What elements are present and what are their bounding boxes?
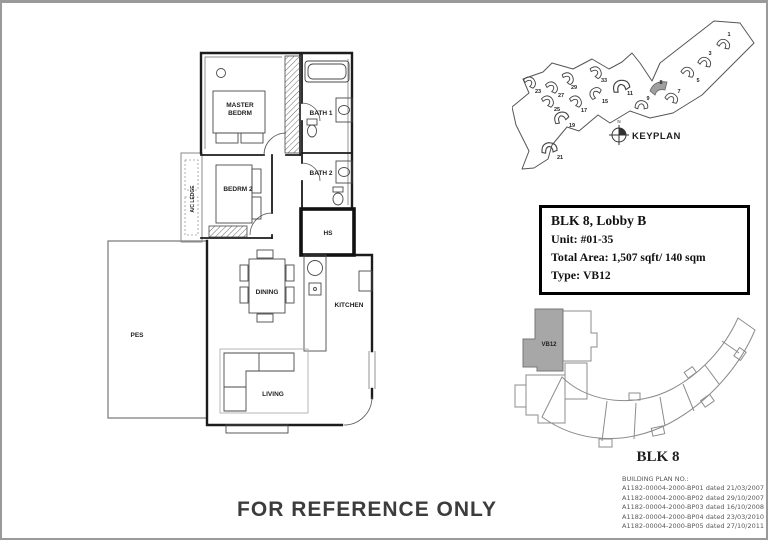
unit-vb12-label: VB12 (541, 342, 557, 348)
keyplan-block-number: 21 (557, 155, 563, 161)
label-bath1: BATH 1 (310, 110, 333, 117)
unit-info-title: BLK 8, Lobby B (551, 213, 738, 229)
pes-outline (108, 241, 207, 418)
keyplan-block-number: 3 (708, 51, 711, 57)
keyplan-block-number: 17 (581, 108, 587, 114)
label-kitchen: KITCHEN (335, 302, 364, 309)
keyplan-block-number: 9 (646, 96, 649, 102)
compass-icon: N (609, 119, 629, 145)
area-label: Total Area: (551, 250, 609, 264)
floorplan-page: MASTER BEDRM BEDRM 2 BATH 1 BATH 2 HS A/… (0, 0, 768, 540)
sink-icon (308, 261, 323, 276)
keyplan-block-number: 25 (554, 107, 560, 113)
keyplan-title: KEYPLAN (632, 131, 681, 142)
building-plan-entry: A1182-00004-2000-BP03 dated 16/10/2008 (622, 503, 764, 512)
fridge-icon (359, 271, 372, 291)
unit-vb12-highlight (523, 309, 563, 371)
door-arcs (250, 103, 372, 425)
keyplan-block-number: 29 (571, 85, 577, 91)
keyplan: 1 3 5 7 8 9 11 15 17 19 21 23 25 27 29 3… (512, 15, 764, 173)
label-living: LIVING (262, 391, 284, 398)
label-bath2: BATH 2 (310, 170, 333, 177)
keyplan-block-number: 15 (602, 99, 608, 105)
reference-watermark: FOR REFERENCE ONLY (202, 498, 532, 522)
type-value: VB12 (583, 270, 610, 282)
block-diagram: VB12 BLK 8 (507, 298, 765, 470)
keyplan-block-number: 19 (569, 123, 575, 129)
floor-plan: MASTER BEDRM BEDRM 2 BATH 1 BATH 2 HS A/… (97, 38, 397, 458)
light-point-icon (217, 69, 226, 78)
label-dining: DINING (256, 289, 279, 296)
compass-north-label: N (617, 119, 620, 124)
unit-info-box: BLK 8, Lobby B Unit: #01-35 Total Area: … (539, 205, 750, 295)
label-bedroom2: BEDRM 2 (223, 186, 253, 193)
building-plan-entry: A1182-00004-2000-BP02 dated 29/10/2007 (622, 494, 764, 503)
keyplan-block-number: 23 (535, 89, 541, 95)
dining-table-icon (249, 259, 285, 313)
building-plan-numbers: BUILDING PLAN NO.: A1182-00004-2000-BP01… (622, 475, 764, 532)
keyplan-block-number: 8 (659, 80, 662, 86)
label-hs: HS (323, 230, 333, 237)
building-plan-entry: A1182-00004-2000-BP04 dated 23/03/2010 (622, 513, 764, 522)
label-master-bedroom: MASTER (226, 102, 254, 109)
keyplan-block-number: 1 (727, 32, 730, 38)
total-area-row: Total Area: 1,507 sqft/ 140 sqm (551, 249, 738, 267)
unit-type-row: Type: VB12 (551, 267, 738, 285)
keyplan-block-number: 5 (696, 78, 699, 84)
keyplan-block-number: 11 (627, 91, 633, 97)
unit-number-row: Unit: #01-35 (551, 231, 738, 249)
wardrobe-master (285, 56, 300, 153)
unit-label: Unit: (551, 232, 578, 246)
block-8-label: BLK 8 (637, 449, 680, 465)
keyplan-block-number: 27 (558, 93, 564, 99)
area-value: 1,507 sqft/ 140 sqm (612, 252, 706, 264)
keyplan-block-number: 33 (601, 78, 607, 84)
wardrobe-bedroom2 (209, 226, 247, 237)
wc-icon (308, 125, 317, 137)
unit-value: #01-35 (581, 234, 614, 246)
type-label: Type: (551, 268, 580, 282)
building-plan-entry: A1182-00004-2000-BP01 dated 21/03/2007 (622, 484, 764, 493)
label-master-bedroom-2: BEDRM (228, 110, 252, 117)
building-plan-entry: A1182-00004-2000-BP05 dated 27/10/2011 (622, 522, 764, 531)
label-ac-ledge: A/C LEDGE (190, 185, 196, 213)
keyplan-block-number: 7 (677, 89, 680, 95)
label-pes: PES (130, 332, 144, 339)
building-plan-heading: BUILDING PLAN NO.: (622, 475, 764, 484)
